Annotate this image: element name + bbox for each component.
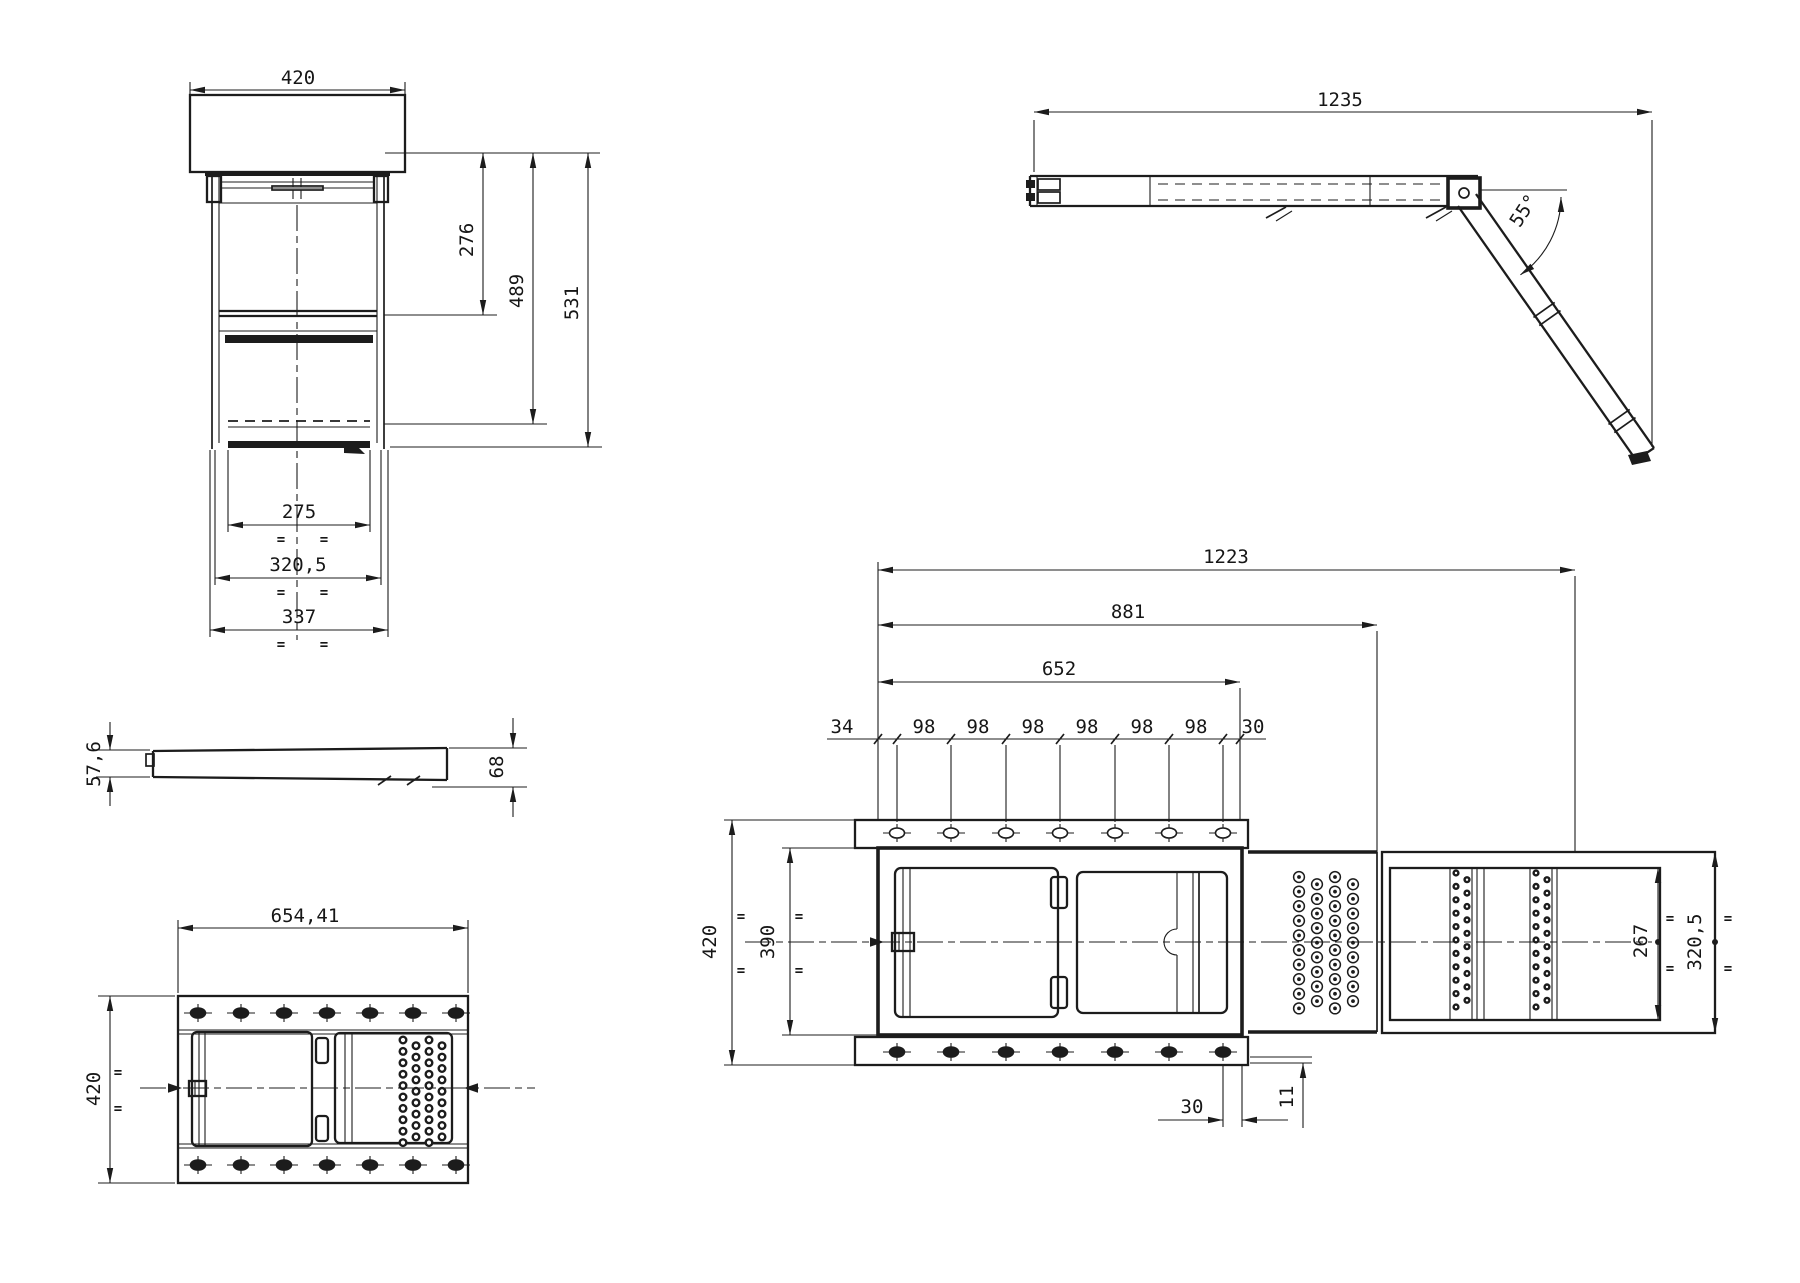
equal-mark: = [1724, 911, 1732, 927]
bolt [277, 1160, 292, 1170]
arrowhead [585, 432, 591, 447]
clip-lower [316, 1116, 328, 1141]
bolt [1162, 1047, 1177, 1057]
perforation-center [1315, 882, 1319, 886]
perforation-center [1315, 970, 1319, 974]
equal-mark: = [277, 532, 285, 548]
bolt [1053, 1047, 1068, 1057]
perforation-hole [439, 1054, 446, 1061]
arrowhead [729, 1050, 735, 1065]
section-arrow [168, 1083, 182, 1093]
arrowhead [1712, 1018, 1718, 1033]
perforation-hole [426, 1128, 433, 1135]
grip-dot-center [1546, 986, 1548, 988]
grip-dot-center [1546, 999, 1548, 1001]
arrowhead [787, 848, 793, 863]
dim-leg-angle: 55° [1505, 190, 1542, 231]
arrowhead [1362, 622, 1377, 628]
perforation-hole [439, 1099, 446, 1106]
perforation-center [1351, 941, 1355, 945]
perforation-center [1297, 963, 1301, 967]
perforation-center [1315, 941, 1319, 945]
perforation-hole [439, 1134, 446, 1141]
dim-extended-length: 1235 [1317, 89, 1363, 111]
view-top-closed: 654,41 420 = = [83, 905, 535, 1183]
perforation-hole [426, 1060, 433, 1067]
grip-dot-center [1455, 925, 1457, 927]
grip-dot-center [1535, 899, 1537, 901]
perforation-hole [413, 1065, 420, 1072]
perforation-center [1297, 1007, 1301, 1011]
perforation-hole [413, 1122, 420, 1129]
grip-dot-center [1546, 879, 1548, 881]
arrowhead [1637, 109, 1652, 115]
view-front-folded: 420 276 489 531 275 320,5 337 = = [190, 67, 602, 653]
dim-pitch-5: 98 [1131, 716, 1154, 738]
arrowhead [510, 787, 516, 802]
dim-inner-depth: 390 [757, 925, 779, 959]
grip-dot-center [1466, 946, 1468, 948]
grip-dot-center [1455, 952, 1457, 954]
perforation-center [1333, 934, 1337, 938]
arrowhead [215, 575, 230, 581]
dimension-overall-depth: 420 = = [83, 996, 175, 1183]
perforation-hole [400, 1139, 407, 1146]
perforation-hole [400, 1117, 407, 1124]
mounting-box [190, 95, 405, 172]
equal-mark: = [795, 963, 803, 979]
grip-dot-center [1546, 932, 1548, 934]
perforation-center [1351, 970, 1355, 974]
bolt [277, 1008, 292, 1018]
perforation-center [1297, 977, 1301, 981]
bolt [449, 1008, 464, 1018]
arrowhead [390, 87, 405, 93]
perforation-hole [439, 1111, 446, 1118]
grip-dot-center [1455, 966, 1457, 968]
extended-step-2 [1382, 852, 1715, 1033]
dim-lead-in: 34 [831, 716, 854, 738]
grip-dot-center [1455, 1006, 1457, 1008]
dim-tread-depth: 267 [1630, 924, 1652, 958]
equal-mark: = [277, 637, 285, 653]
perforation-center [1297, 948, 1301, 952]
grip-dot-center [1546, 946, 1548, 948]
perforation-center [1315, 985, 1319, 989]
equal-mark: = [1724, 961, 1732, 977]
folding-leg [1458, 194, 1654, 465]
equal-mark: = [114, 1065, 122, 1081]
dimension-overall-width: 654,41 [178, 905, 468, 993]
bolt-extension-lines [897, 745, 1223, 822]
arrowhead [878, 679, 893, 685]
perforation-center [1333, 904, 1337, 908]
grip-dot-center [1455, 939, 1457, 941]
equal-mark: = [114, 1101, 122, 1117]
arrowhead [1034, 109, 1049, 115]
grip-dot-center [1466, 905, 1468, 907]
arrowhead [510, 733, 516, 748]
dim-flange-lip: 11 [1276, 1086, 1298, 1109]
perforation-center [1351, 985, 1355, 989]
arrowhead [1712, 852, 1718, 867]
perforation-hole [400, 1037, 407, 1044]
clip-upper [316, 1038, 328, 1063]
bolt [1216, 828, 1231, 838]
dimensions-front-view: 420 276 489 531 275 320,5 337 = = [190, 67, 602, 653]
arrowhead [1208, 1117, 1223, 1123]
arrowhead [878, 622, 893, 628]
grip-dot-center [1455, 899, 1457, 901]
perforation-center [1351, 897, 1355, 901]
grip-dot-center [1466, 959, 1468, 961]
dim-upper-step-height: 276 [456, 223, 478, 257]
perforation-hole [413, 1042, 420, 1049]
grip-dot-center [1546, 972, 1548, 974]
grip-dot-center [1535, 885, 1537, 887]
pivot-hinge [1448, 178, 1480, 208]
arrowhead [107, 1168, 113, 1183]
perforation-hole [413, 1111, 420, 1118]
equal-mark: = [737, 963, 745, 979]
arrowhead [355, 522, 370, 528]
perforation-hole [426, 1071, 433, 1078]
bolt [1216, 1047, 1231, 1057]
arrowhead [373, 627, 388, 633]
arrowhead [480, 153, 486, 168]
equal-mark: = [320, 637, 328, 653]
perforation-hole [426, 1105, 433, 1112]
perforation-hole [439, 1042, 446, 1049]
perforation-hole [413, 1134, 420, 1141]
grip-dot-center [1535, 952, 1537, 954]
perforation-center [1315, 955, 1319, 959]
bolt [890, 1047, 905, 1057]
dim-overall-depth: 420 [83, 1072, 105, 1106]
arrowhead [107, 777, 113, 792]
arrowhead [530, 153, 536, 168]
arrowhead [190, 87, 205, 93]
section-arrows [168, 937, 884, 1093]
perforation-hole [439, 1077, 446, 1084]
equal-mark: = [1666, 961, 1674, 977]
grip-dot-center [1455, 885, 1457, 887]
grip-dot-center [1466, 892, 1468, 894]
dim-case-length: 652 [1042, 658, 1076, 680]
slide-rail-arm [1026, 176, 1478, 221]
grip-dot-center [1535, 992, 1537, 994]
dim-pitch-3: 98 [1022, 716, 1045, 738]
dim-edge-offset: 30 [1181, 1096, 1204, 1118]
perforation-hole [426, 1037, 433, 1044]
perforation-center [1297, 934, 1301, 938]
dim-pitch-6: 98 [1185, 716, 1208, 738]
perforation-hole [426, 1117, 433, 1124]
dim-overall-width: 654,41 [271, 905, 340, 927]
bolt [944, 828, 959, 838]
perforation-hole [413, 1099, 420, 1106]
dim-lower-step-height: 489 [506, 274, 528, 308]
view-top-extended: 1223 881 652 34 98 98 98 98 98 98 30 [699, 546, 1732, 1128]
arrowhead [228, 522, 243, 528]
dim-tread-width: 275 [282, 501, 316, 523]
grip-dot-center [1466, 879, 1468, 881]
perforation-center [1315, 926, 1319, 930]
perforation-hole [426, 1139, 433, 1146]
dim-outer-step-depth: 320,5 [1684, 913, 1706, 970]
grip-dot-center [1546, 959, 1548, 961]
dim-front-height: 57,6 [83, 741, 105, 787]
dim-middle-step-length: 881 [1111, 601, 1145, 623]
equal-mark: = [277, 585, 285, 601]
grip-dot-center [1535, 925, 1537, 927]
perforation-center [1333, 919, 1337, 923]
perforated-tread-pattern [1294, 872, 1359, 1014]
perforation-center [1351, 955, 1355, 959]
perforation-hole [400, 1060, 407, 1067]
perforation-center [1333, 963, 1337, 967]
bolt [363, 1008, 378, 1018]
perforation-center [1351, 999, 1355, 1003]
grip-dot-center [1466, 986, 1468, 988]
view-side-deployed: 1235 [1026, 89, 1654, 465]
grip-dot-center [1546, 905, 1548, 907]
grip-dot-center [1535, 966, 1537, 968]
perforation-hole [439, 1122, 446, 1129]
perforation-hole [400, 1128, 407, 1135]
perforation-hole [400, 1094, 407, 1101]
perforation-center [1315, 897, 1319, 901]
bolt [363, 1160, 378, 1170]
bolt [999, 1047, 1014, 1057]
bolt [234, 1008, 249, 1018]
arrowhead [107, 735, 113, 750]
bolt [320, 1160, 335, 1170]
perforation-center [1297, 992, 1301, 996]
dimensions-profile: 57,6 68 [83, 718, 527, 817]
bolt [1162, 828, 1177, 838]
grip-dot-center [1535, 872, 1537, 874]
perforation-center [1333, 890, 1337, 894]
perforation-hole [400, 1071, 407, 1078]
arrowhead [453, 925, 468, 931]
arrowhead [585, 153, 591, 168]
arrowhead [480, 300, 486, 315]
perforation-center [1315, 912, 1319, 916]
dim-outer-width: 337 [282, 606, 316, 628]
arrowhead [1300, 1063, 1306, 1078]
perforation-center [1297, 919, 1301, 923]
perforation-hole [400, 1105, 407, 1112]
equal-mark: = [795, 909, 803, 925]
bolt [1108, 828, 1123, 838]
equal-mark: = [737, 909, 745, 925]
bolt [944, 1047, 959, 1057]
dim-pitch-1: 98 [913, 716, 936, 738]
perforation-center [1351, 882, 1355, 886]
arrowhead [366, 575, 381, 581]
grip-dot-center [1466, 932, 1468, 934]
arrowhead [178, 925, 193, 931]
bolt [1108, 1047, 1123, 1057]
perforation-hole [439, 1065, 446, 1072]
arrowhead [787, 1020, 793, 1035]
dimensions-bottom: 30 11 [1158, 1057, 1312, 1128]
dim-rear-height: 68 [486, 756, 508, 779]
dimension-extended-length: 1235 [1034, 89, 1652, 447]
bolt [234, 1160, 249, 1170]
view-profile-closed: 57,6 68 [83, 718, 527, 817]
perforated-tread-pattern [400, 1037, 446, 1146]
perforation-center [1297, 875, 1301, 879]
dim-total-height: 531 [561, 286, 583, 320]
perforation-center [1297, 904, 1301, 908]
arrowhead [1558, 197, 1564, 212]
dimensions-right-depth: 267 = = 320,5 = = [1630, 852, 1732, 1033]
section-arrow [464, 1083, 478, 1093]
perforation-hole [439, 1088, 446, 1095]
bolt [999, 828, 1014, 838]
perforation-center [1351, 926, 1355, 930]
grip-dot-center [1455, 912, 1457, 914]
arrowhead [1242, 1117, 1257, 1123]
grip-dot-center [1466, 999, 1468, 1001]
equal-mark: = [320, 532, 328, 548]
perforation-center [1333, 948, 1337, 952]
arrowhead [878, 567, 893, 573]
arrowhead [530, 409, 536, 424]
grip-dot-center [1466, 919, 1468, 921]
perforation-hole [400, 1048, 407, 1055]
grip-strip-pattern [1452, 869, 1550, 1010]
dim-pitch-2: 98 [967, 716, 990, 738]
dim-overall-length: 1223 [1203, 546, 1249, 568]
dim-outer-depth: 420 [699, 925, 721, 959]
grip-dot-center [1546, 892, 1548, 894]
dim-end-gap: 30 [1242, 716, 1265, 738]
bolt [890, 828, 905, 838]
grip-dot-center [1535, 939, 1537, 941]
bolt [320, 1008, 335, 1018]
grip-dot-center [1535, 1006, 1537, 1008]
bolt [191, 1160, 206, 1170]
bolt [1053, 828, 1068, 838]
dim-pitch-4: 98 [1076, 716, 1099, 738]
bolt [449, 1160, 464, 1170]
bolt [406, 1160, 421, 1170]
bolt [406, 1008, 421, 1018]
arrowhead [210, 627, 225, 633]
grip-dot-center [1466, 972, 1468, 974]
perforation-center [1333, 1007, 1337, 1011]
equal-mark: = [1666, 911, 1674, 927]
perforation-center [1315, 999, 1319, 1003]
grip-dot-center [1455, 979, 1457, 981]
perforation-center [1297, 890, 1301, 894]
dim-top-width: 420 [281, 67, 315, 89]
arrowhead [1225, 679, 1240, 685]
bolt [191, 1008, 206, 1018]
left-tread-panel [192, 1032, 312, 1146]
grip-dot-center [1455, 872, 1457, 874]
grip-dot-center [1535, 979, 1537, 981]
closed-step-profile [146, 748, 447, 785]
perforation-center [1333, 875, 1337, 879]
perforation-center [1333, 992, 1337, 996]
perforation-hole [413, 1088, 420, 1095]
perforation-hole [426, 1094, 433, 1101]
grip-dot-center [1535, 912, 1537, 914]
dim-case-width: 320,5 [269, 554, 326, 576]
perforation-hole [426, 1048, 433, 1055]
perforation-hole [413, 1054, 420, 1061]
grip-dot-center [1546, 919, 1548, 921]
perforation-center [1333, 977, 1337, 981]
dimension-chain-top: 1223 881 652 34 98 98 98 98 98 98 30 [827, 546, 1575, 852]
arrowhead [1560, 567, 1575, 573]
grip-dot-center [1455, 992, 1457, 994]
arrowhead [729, 820, 735, 835]
perforation-hole [413, 1077, 420, 1084]
perforation-center [1351, 912, 1355, 916]
equal-mark: = [320, 585, 328, 601]
technical-drawing: 420 276 489 531 275 320,5 337 = = [0, 0, 1800, 1283]
drawing-sheet: 420 276 489 531 275 320,5 337 = = [0, 0, 1800, 1283]
arrowhead [107, 996, 113, 1011]
